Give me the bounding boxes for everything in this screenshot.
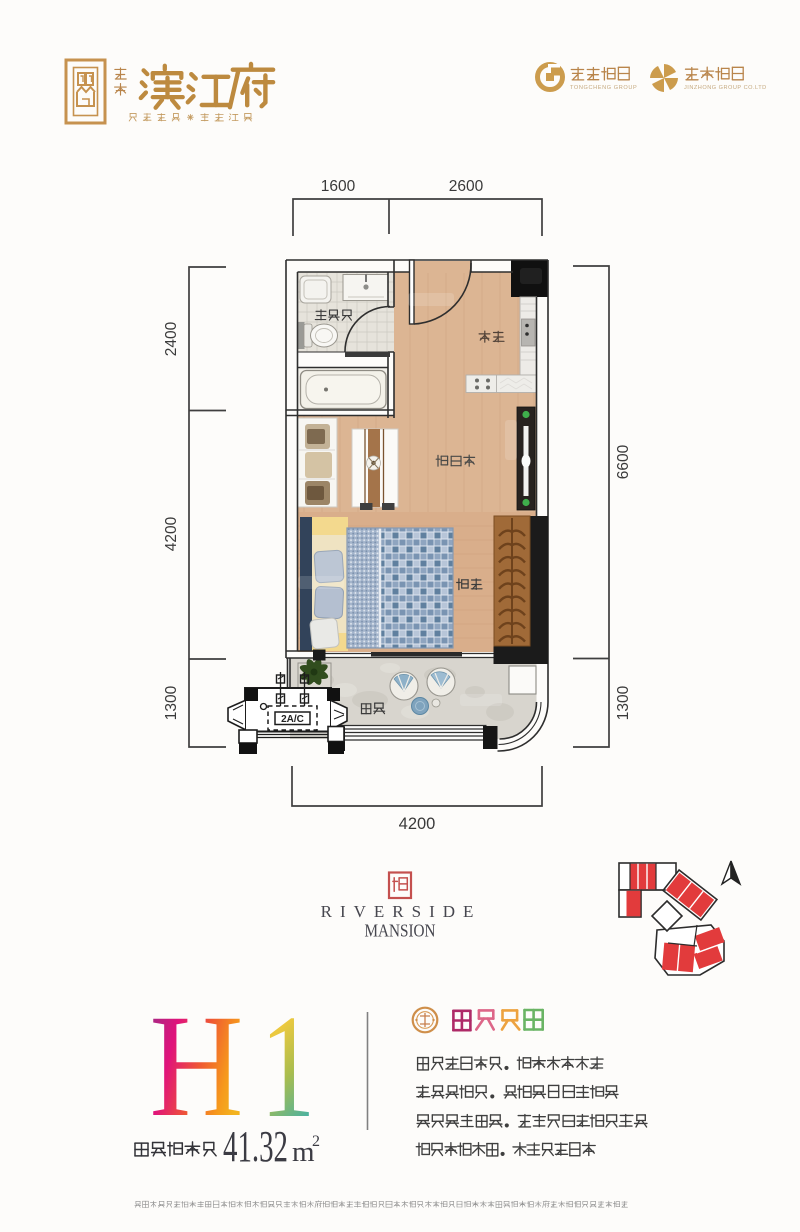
svg-text:JINZHONG GROUP CO.LTD: JINZHONG GROUP CO.LTD [684,85,767,91]
svg-text:2400: 2400 [163,321,180,356]
svg-text:2600: 2600 [449,178,484,195]
svg-text:1300: 1300 [163,685,180,720]
svg-text:2: 2 [312,1133,320,1150]
svg-text:1600: 1600 [321,178,356,195]
svg-text:2A/C: 2A/C [281,714,304,725]
svg-text:41.32: 41.32 [223,1122,288,1171]
svg-text:1300: 1300 [615,685,632,720]
svg-text:RIVERSIDE: RIVERSIDE [321,902,482,921]
svg-text:4200: 4200 [399,815,436,833]
svg-text:MANSION: MANSION [365,921,436,941]
svg-text:6600: 6600 [615,444,632,479]
svg-text:TONGCHENG GROUP: TONGCHENG GROUP [570,85,637,91]
svg-text:4200: 4200 [163,516,180,551]
